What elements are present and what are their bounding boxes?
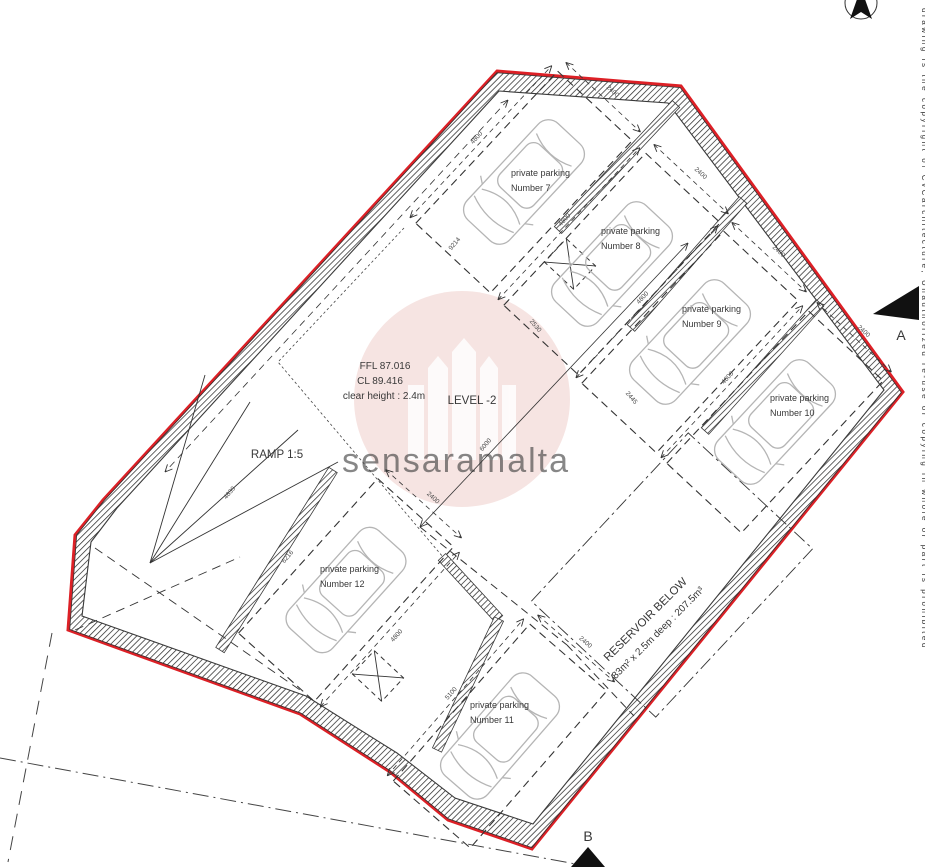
- stall-label-line1: private parking: [601, 226, 660, 236]
- stall-label-line2: Number 9: [682, 319, 722, 329]
- stall-label-line2: Number 8: [601, 241, 641, 251]
- architectural-drawing-page: { "title": "Basement parking level plan"…: [0, 0, 925, 867]
- cl-label: CL 89.416: [357, 376, 403, 387]
- stall-label-line2: Number 11: [470, 715, 514, 725]
- floor-plan-canvas: sensaramalta 24004800private parkingNumb…: [0, 0, 925, 867]
- ffl-label: FFL 87.016: [360, 361, 411, 372]
- stall-label-line2: Number 7: [511, 183, 551, 193]
- watermark-text: sensaramalta: [342, 442, 570, 480]
- section-a-label: A: [896, 327, 906, 343]
- ramp-label: RAMP 1:5: [251, 449, 303, 461]
- section-a-arrow: [873, 286, 919, 320]
- level-label: LEVEL -2: [448, 395, 497, 407]
- stall-label-line1: private parking: [470, 700, 529, 710]
- stall-label-line1: private parking: [320, 564, 379, 574]
- section-b-arrow: [571, 847, 605, 867]
- stall-label-line2: Number 12: [320, 579, 365, 589]
- stall-label-line2: Number 10: [770, 408, 815, 418]
- clear-height-label: clear height : 2.4m: [343, 391, 425, 402]
- stall-label-line1: private parking: [682, 304, 741, 314]
- stall-label-line1: private parking: [770, 393, 829, 403]
- copyright-text: drawing is the copyright of CvCarchitect…: [920, 8, 925, 648]
- stall-label-line1: private parking: [511, 168, 570, 178]
- section-b-label: B: [583, 828, 592, 844]
